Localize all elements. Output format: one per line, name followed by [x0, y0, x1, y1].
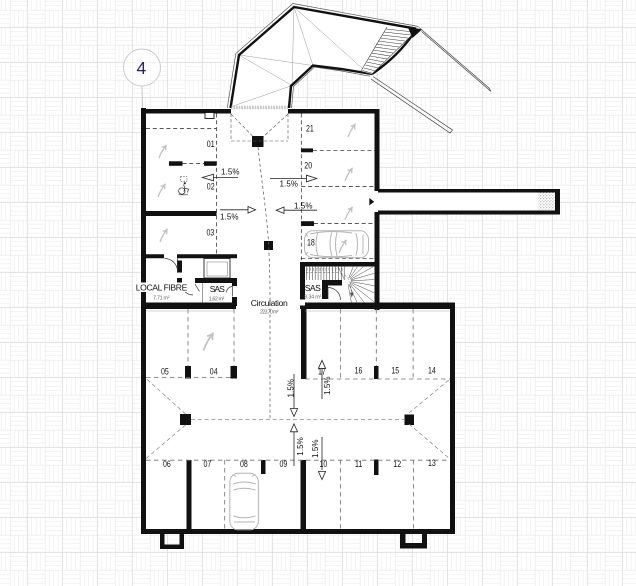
svg-text:1.5%: 1.5%	[311, 440, 320, 459]
svg-text:4: 4	[137, 58, 147, 78]
svg-text:14: 14	[428, 366, 436, 376]
svg-text:11: 11	[355, 459, 363, 469]
svg-text:07: 07	[204, 459, 212, 469]
svg-text:17: 17	[318, 367, 326, 377]
svg-text:1.5%: 1.5%	[286, 379, 295, 398]
svg-text:15: 15	[391, 366, 399, 376]
svg-text:18: 18	[307, 238, 315, 248]
svg-text:1.5%: 1.5%	[220, 212, 239, 221]
svg-text:LOCAL FIBRE: LOCAL FIBRE	[136, 283, 188, 293]
svg-text:01: 01	[207, 139, 215, 149]
svg-text:1.5%: 1.5%	[323, 377, 332, 396]
svg-text:SAS: SAS	[305, 283, 321, 293]
svg-text:10: 10	[320, 459, 328, 469]
svg-text:05: 05	[161, 367, 169, 377]
svg-text:8.34 m²: 8.34 m²	[304, 295, 321, 301]
svg-text:1.5%: 1.5%	[221, 167, 240, 176]
svg-text:21: 21	[306, 124, 314, 134]
svg-text:04: 04	[210, 367, 218, 377]
svg-text:09: 09	[280, 459, 288, 469]
svg-text:333231003275: 333231003275	[306, 267, 343, 271]
svg-text:1.5%: 1.5%	[296, 437, 305, 456]
svg-text:223.70 m²: 223.70 m²	[260, 309, 279, 315]
svg-text:12: 12	[393, 459, 401, 469]
svg-text:20: 20	[304, 160, 312, 170]
svg-text:02: 02	[207, 182, 215, 192]
svg-text:06: 06	[163, 459, 171, 469]
svg-text:03: 03	[207, 228, 215, 238]
svg-text:08: 08	[240, 459, 248, 469]
svg-text:7.71 m²: 7.71 m²	[153, 296, 170, 302]
svg-text:1.5%: 1.5%	[294, 201, 313, 210]
svg-text:SAS: SAS	[210, 284, 225, 294]
svg-text:Circulation: Circulation	[251, 298, 288, 308]
svg-text:13: 13	[428, 458, 436, 468]
svg-text:1.62 m²: 1.62 m²	[209, 296, 225, 302]
svg-text:1.5%: 1.5%	[280, 179, 299, 188]
svg-text:16: 16	[355, 366, 363, 376]
